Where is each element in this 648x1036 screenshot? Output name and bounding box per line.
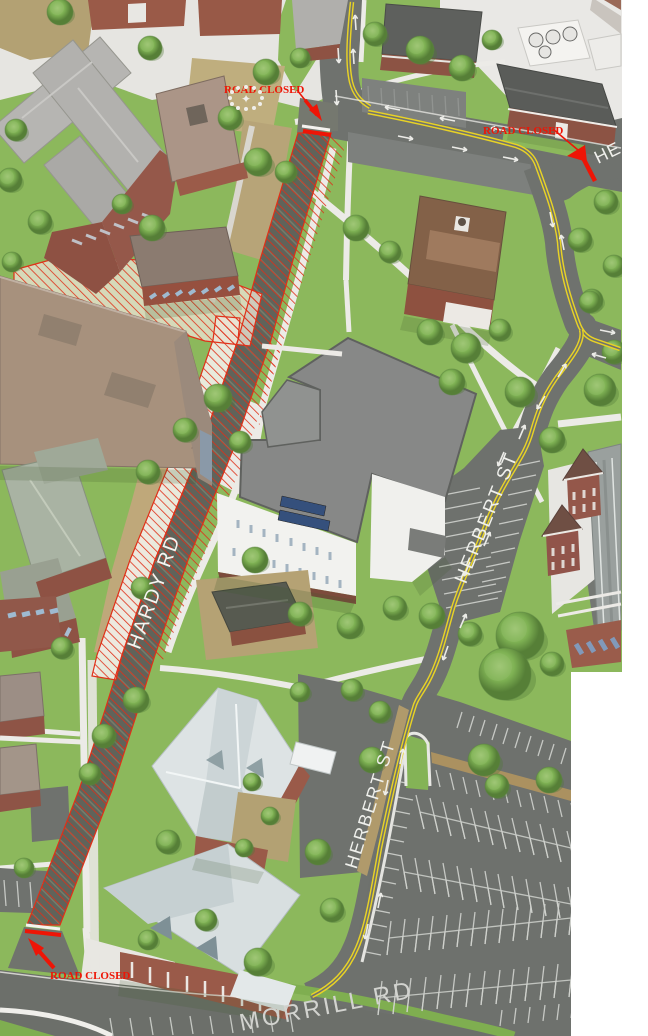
svg-text:ROAD CLOSED: ROAD CLOSED <box>50 970 130 982</box>
svg-text:✦: ✦ <box>241 92 251 106</box>
svg-text:ROAD CLOSED: ROAD CLOSED <box>483 125 563 137</box>
svg-text:ROAD CLOSED: ROAD CLOSED <box>224 84 304 96</box>
